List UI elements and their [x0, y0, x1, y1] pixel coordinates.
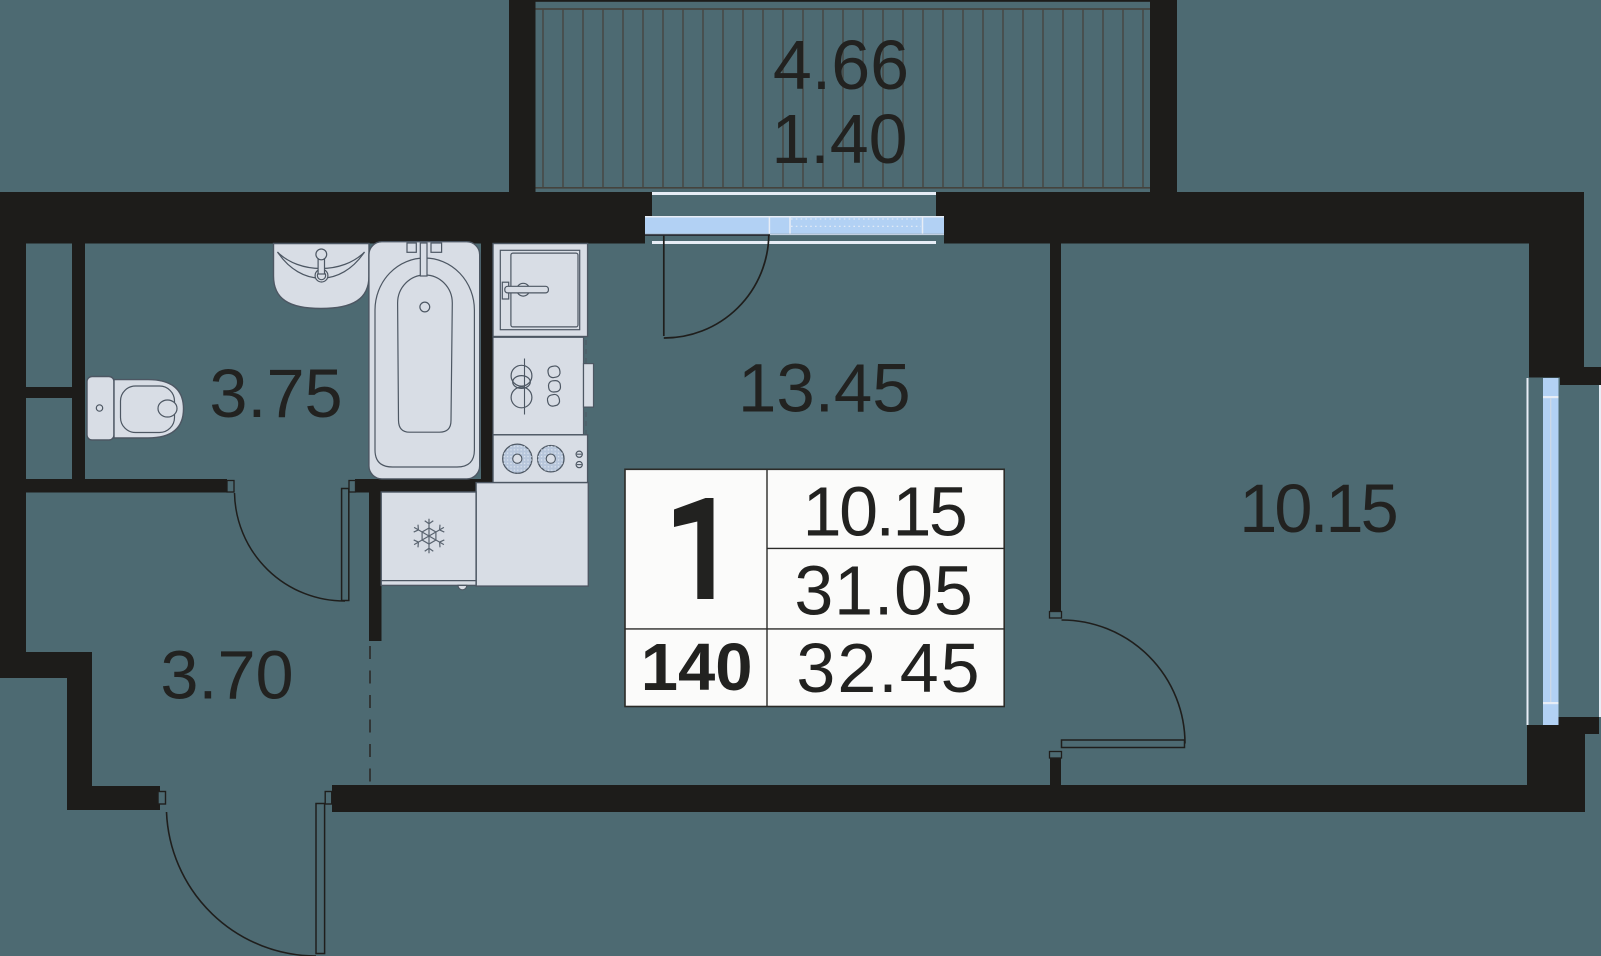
- svg-text:32.45: 32.45: [796, 629, 981, 707]
- svg-text:1.40: 1.40: [771, 100, 907, 178]
- svg-text:3.70: 3.70: [160, 637, 293, 714]
- svg-text:13.45: 13.45: [738, 350, 911, 427]
- svg-text:31.05: 31.05: [794, 552, 973, 630]
- svg-text:140: 140: [641, 630, 753, 705]
- svg-text:10.15: 10.15: [1239, 470, 1396, 547]
- svg-text:4.66: 4.66: [773, 26, 909, 104]
- svg-text:10.15: 10.15: [803, 473, 966, 551]
- svg-text:3.75: 3.75: [209, 355, 342, 432]
